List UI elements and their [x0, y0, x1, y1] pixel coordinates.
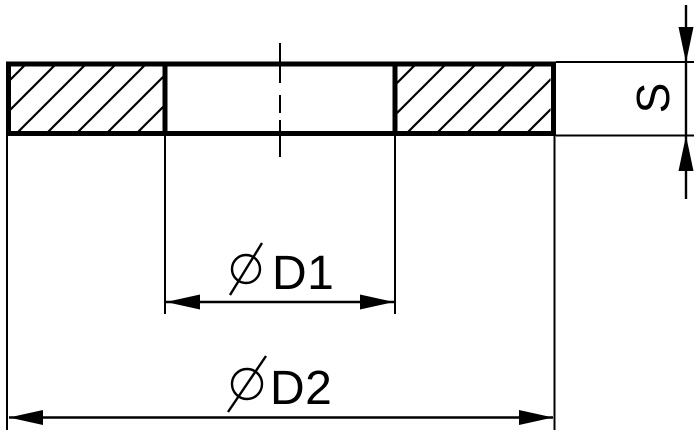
diameter-symbol-icon [228, 356, 266, 412]
dimension-d1: D1 [165, 136, 395, 314]
d1-arrowhead-left [166, 295, 200, 310]
diameter-symbol-icon [230, 243, 262, 295]
d2-arrowhead-right [519, 410, 553, 425]
section-hatch-left [11, 67, 163, 132]
s-label: S [627, 83, 679, 114]
d2-arrowhead-left [9, 410, 43, 425]
washer-technical-drawing: D1 D2 S [0, 0, 700, 433]
s-arrowhead-bottom [679, 136, 694, 172]
d1-label: D1 [272, 247, 334, 300]
section-hatch-right [398, 67, 551, 132]
s-arrowhead-top [679, 27, 694, 63]
dimension-s: S [556, 5, 694, 199]
technical-drawing-page: D1 D2 S [0, 0, 700, 433]
d2-label: D2 [270, 362, 332, 415]
d1-arrowhead-right [360, 295, 394, 310]
washer-body-section [9, 43, 554, 157]
